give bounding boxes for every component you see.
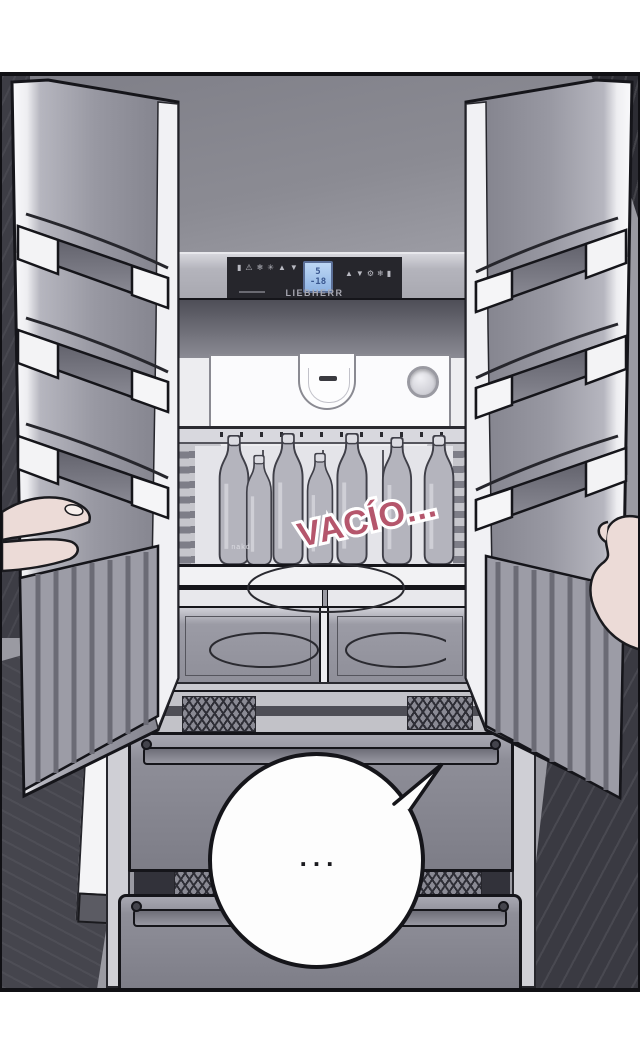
control-icons-left: ▮ ⚠ ❄ ✳ ▲ ▼ — [237, 264, 298, 272]
fridge-door-right — [462, 78, 636, 810]
brand-logo: LIEBHERR — [227, 288, 402, 298]
freezer-temp: -18 — [310, 277, 326, 287]
bottle-label: nakd — [223, 544, 259, 551]
settings-icon: ⚙ — [367, 270, 374, 278]
temp-down-icon: ▼ — [356, 270, 364, 278]
glass-reflections — [202, 556, 446, 672]
superfrost-icon: ❄ — [257, 264, 264, 272]
power-icon: ▮ — [237, 264, 241, 272]
temp-up-icon: ▲ — [278, 264, 286, 272]
screw — [131, 901, 142, 912]
left-hand — [2, 482, 110, 574]
wire-basket — [182, 696, 256, 732]
right-hand — [584, 512, 640, 652]
alarm-icon: ⚠ — [245, 264, 252, 272]
fridge-door-left — [8, 78, 182, 810]
thermostat-knob — [407, 366, 439, 398]
comic-panel: ▮ ⚠ ❄ ✳ ▲ ▼ 5 -18 ▲ ▼ ⚙ ❄ ▮ — [0, 72, 640, 992]
frost-icon: ❄ — [377, 270, 384, 278]
control-panel: ▮ ⚠ ❄ ✳ ▲ ▼ 5 -18 ▲ ▼ ⚙ ❄ ▮ — [227, 257, 402, 299]
door-bottom-bin — [20, 546, 158, 790]
fridge-temp: 5 — [315, 267, 320, 277]
speech-bubble-text: ... — [300, 842, 340, 873]
interior-upper-shadow — [167, 300, 477, 358]
interior-light — [298, 354, 356, 410]
power-icon: ▮ — [387, 270, 391, 278]
temp-down-icon: ▼ — [290, 264, 298, 272]
temp-up-icon: ▲ — [345, 270, 353, 278]
comic-page: ▮ ⚠ ❄ ✳ ▲ ▼ 5 -18 ▲ ▼ ⚙ ❄ ▮ — [0, 0, 640, 1064]
interior-top-panel — [209, 354, 451, 430]
screw — [498, 901, 509, 912]
speech-bubble-tail — [392, 762, 448, 816]
light-arc — [308, 368, 350, 403]
ventilation-icon: ✳ — [267, 264, 274, 272]
control-icons-right: ▲ ▼ ⚙ ❄ ▮ — [345, 270, 391, 278]
